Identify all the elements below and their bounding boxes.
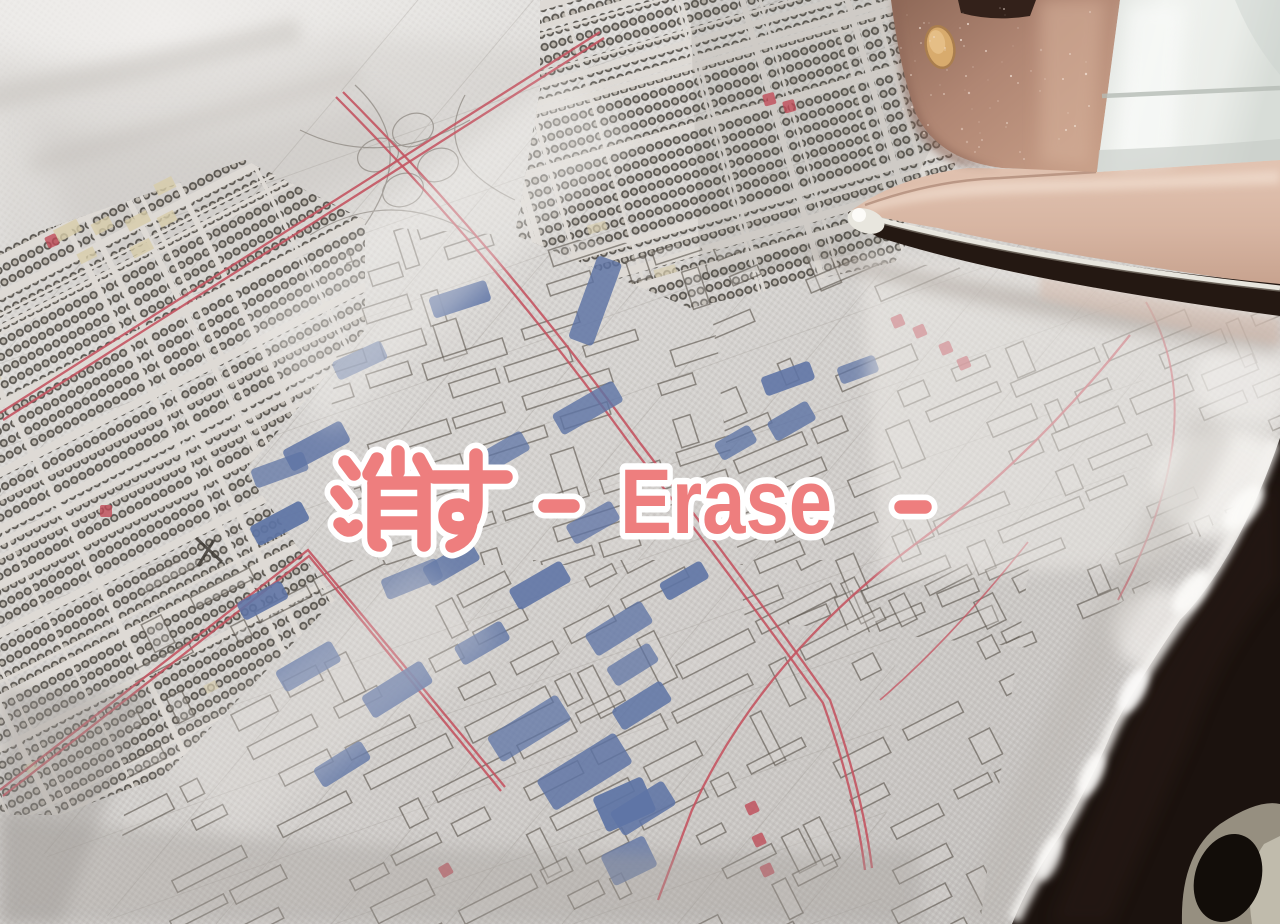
svg-text:Erase: Erase bbox=[620, 451, 832, 553]
